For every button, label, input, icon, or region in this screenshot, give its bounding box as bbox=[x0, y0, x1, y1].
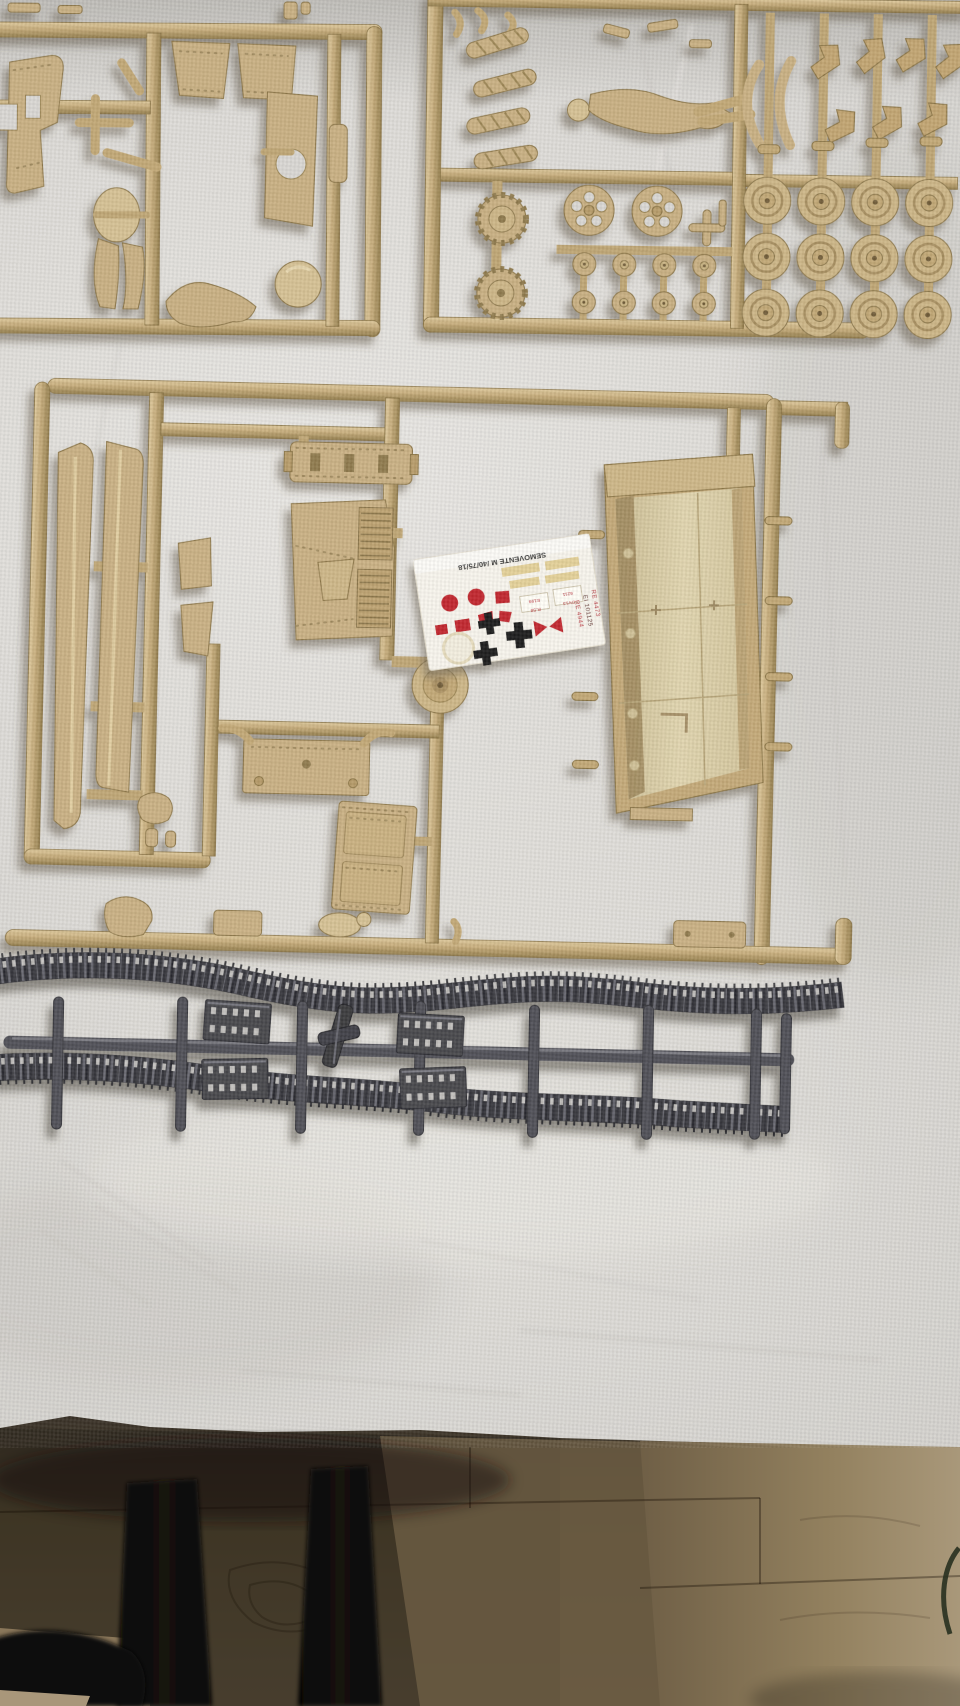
sprue-runner bbox=[24, 382, 50, 864]
track-section-part bbox=[400, 1067, 467, 1109]
sprue-runner bbox=[365, 27, 382, 337]
leg-shadow-band bbox=[0, 1438, 510, 1522]
leaf-spring-part bbox=[473, 144, 539, 170]
model-kit-photo-scene: SEMOVENTE M /40/75/18 E199 R.58 6211 DV1… bbox=[0, 0, 960, 1706]
exhaust-box-part bbox=[284, 442, 419, 485]
wedge-part bbox=[177, 537, 212, 590]
small-wheel-part bbox=[652, 292, 675, 315]
loose-bits-top bbox=[8, 0, 310, 19]
plate-slot bbox=[0, 104, 17, 130]
small-wheel-part bbox=[572, 291, 595, 314]
sprue-runner-hook bbox=[835, 402, 850, 448]
small-wheel-part bbox=[613, 253, 636, 276]
superstructure-plate-part bbox=[288, 498, 395, 642]
sprue-runner bbox=[202, 644, 220, 856]
hatch-panel-part bbox=[331, 801, 417, 915]
figure-torso-part bbox=[93, 188, 145, 309]
small-column-part bbox=[329, 124, 347, 182]
table-leg-right bbox=[298, 1466, 382, 1706]
figure-lying-part bbox=[166, 282, 256, 327]
photo-canvas: SEMOVENTE M /40/75/18 E199 R.58 6211 DV1… bbox=[0, 0, 960, 1706]
sprue-tracks-gray bbox=[0, 948, 843, 1142]
leaf-spring-part bbox=[464, 26, 530, 60]
sprue-runner-hook bbox=[835, 918, 852, 964]
track-section-part bbox=[396, 1013, 464, 1056]
small-wheel-part bbox=[573, 253, 596, 276]
sprue-runner bbox=[423, 0, 443, 332]
leaf-spring-part bbox=[465, 106, 531, 135]
hull-bottom-tab bbox=[630, 808, 692, 821]
suspension-bracket-part bbox=[890, 31, 933, 78]
sprue-runner bbox=[440, 168, 732, 185]
sprue-runner bbox=[145, 33, 161, 325]
track-section-part bbox=[203, 1000, 272, 1045]
floor-under-table bbox=[0, 1416, 960, 1706]
figure-part bbox=[567, 89, 751, 135]
idler-wheel-part bbox=[632, 186, 683, 237]
sprue-runner bbox=[428, 0, 960, 14]
sprue-main bbox=[5, 378, 864, 967]
sprue-top-left bbox=[0, 0, 382, 337]
sprue-runner bbox=[0, 22, 382, 40]
curved-arm-part bbox=[746, 64, 761, 144]
wedge-part bbox=[180, 601, 213, 656]
decal-sheet: SEMOVENTE M /40/75/18 E199 R.58 6211 DV1… bbox=[413, 534, 606, 674]
curved-arm-part bbox=[779, 61, 791, 145]
wood-right bbox=[640, 1441, 960, 1706]
idler-wheel-part bbox=[564, 185, 615, 236]
small-wheel-part bbox=[692, 292, 715, 315]
suspension-bracket-part bbox=[851, 32, 892, 79]
track-section-part bbox=[202, 1058, 269, 1099]
sprue-runner bbox=[161, 423, 393, 441]
part-cutout bbox=[25, 95, 40, 118]
small-top-bits bbox=[603, 18, 712, 48]
small-wheel-part bbox=[653, 254, 676, 277]
sprue-runner bbox=[730, 4, 748, 328]
hook-bits bbox=[455, 10, 514, 35]
cross-shaft-parts bbox=[689, 200, 727, 247]
sprue-runner bbox=[24, 849, 210, 868]
sprocket-wheel-part bbox=[477, 269, 526, 318]
rear-plate-part bbox=[221, 728, 391, 796]
hatch-part bbox=[237, 44, 295, 100]
hatch-part bbox=[171, 41, 229, 98]
sprue-runner bbox=[425, 707, 443, 943]
sprocket-wheel-part bbox=[478, 195, 527, 244]
small-wheel-part bbox=[612, 291, 635, 314]
small-wheel-part bbox=[693, 254, 716, 277]
leaf-spring-part bbox=[472, 67, 538, 98]
